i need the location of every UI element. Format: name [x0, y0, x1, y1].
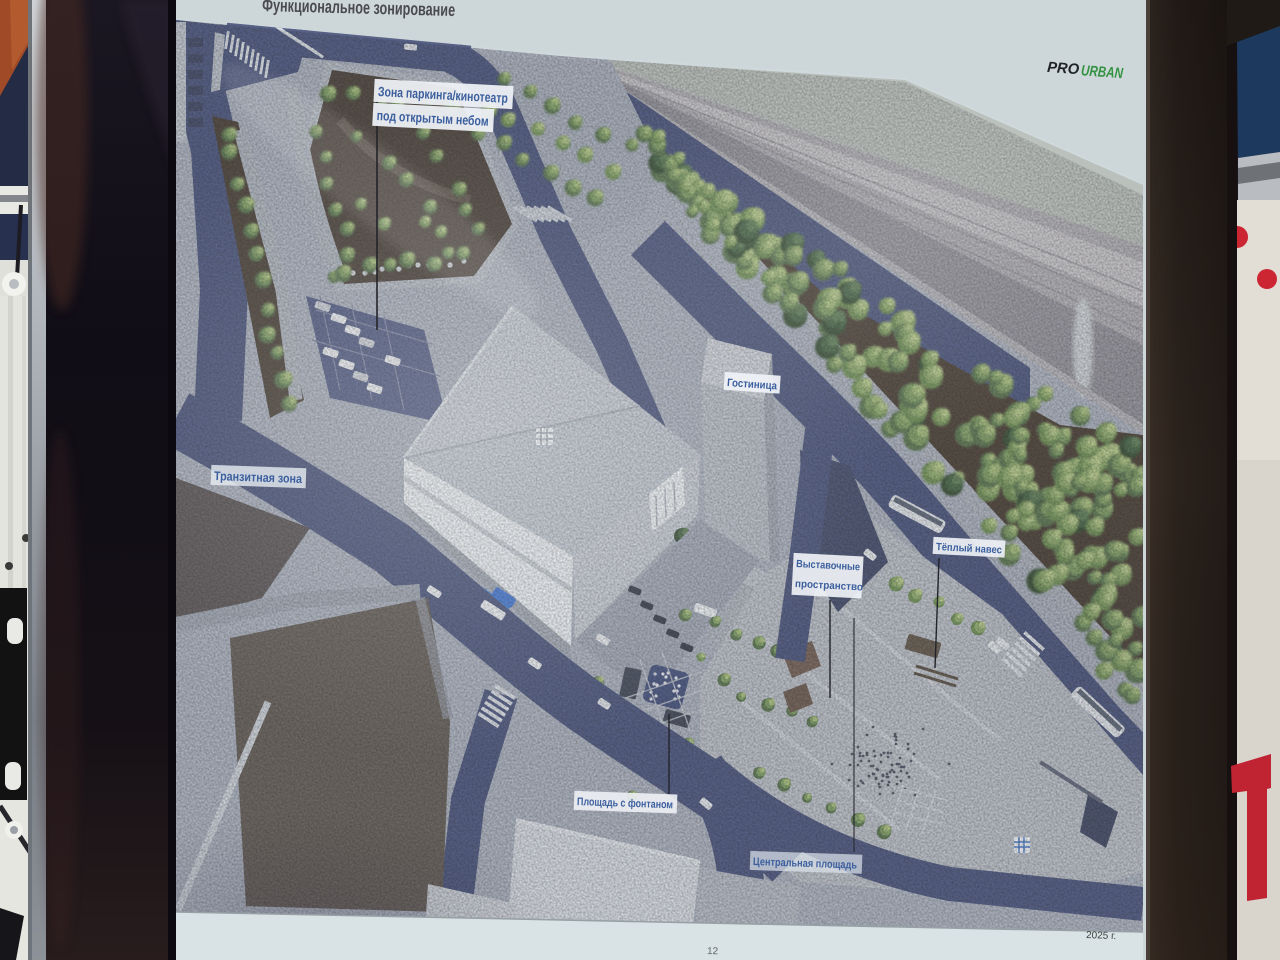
svg-text:2025 г.: 2025 г. [1086, 930, 1117, 942]
svg-text:PRO: PRO [1047, 59, 1080, 78]
svg-text:12: 12 [707, 946, 719, 957]
svg-text:URBAN: URBAN [1080, 62, 1124, 82]
